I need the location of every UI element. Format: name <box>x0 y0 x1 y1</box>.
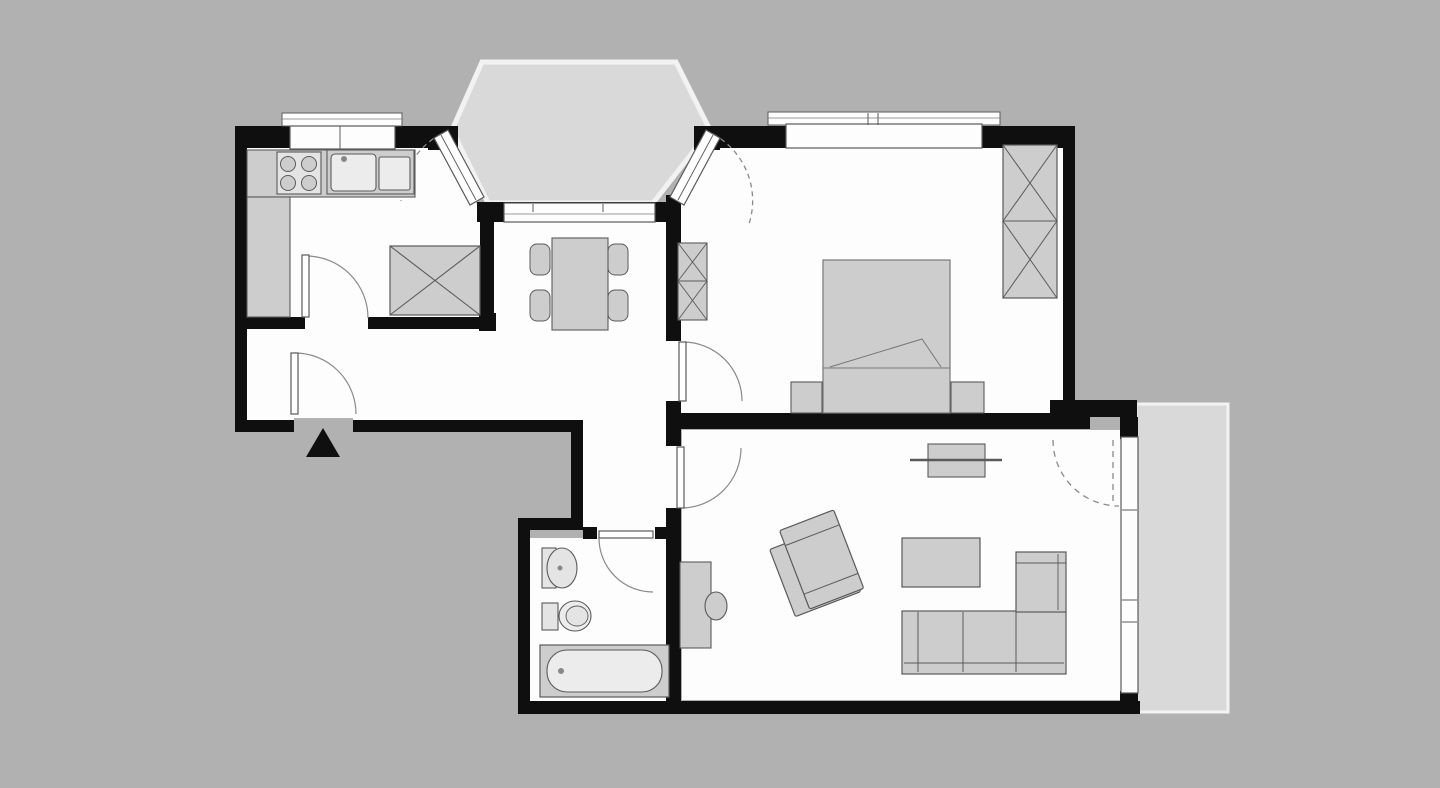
bathtub <box>540 645 669 697</box>
bedroom-window <box>768 112 1000 148</box>
toilet <box>542 601 591 631</box>
kitchen-cupboard <box>390 246 480 315</box>
dining-window <box>504 203 655 222</box>
bedroom-cabinet <box>678 243 707 320</box>
floor-plan-canvas <box>0 0 1440 788</box>
desk-chair <box>705 592 727 620</box>
living-glass-front <box>1121 437 1138 693</box>
terrace <box>1136 404 1228 712</box>
coffee-table <box>902 538 980 587</box>
wardrobe <box>1003 145 1057 298</box>
bath-sink <box>542 548 577 588</box>
kitchen-sink <box>327 150 414 194</box>
kitchen-window <box>282 113 402 149</box>
floor-plan <box>0 0 1440 788</box>
balcony-hexagon <box>452 62 710 203</box>
kitchen-stove <box>277 152 321 194</box>
